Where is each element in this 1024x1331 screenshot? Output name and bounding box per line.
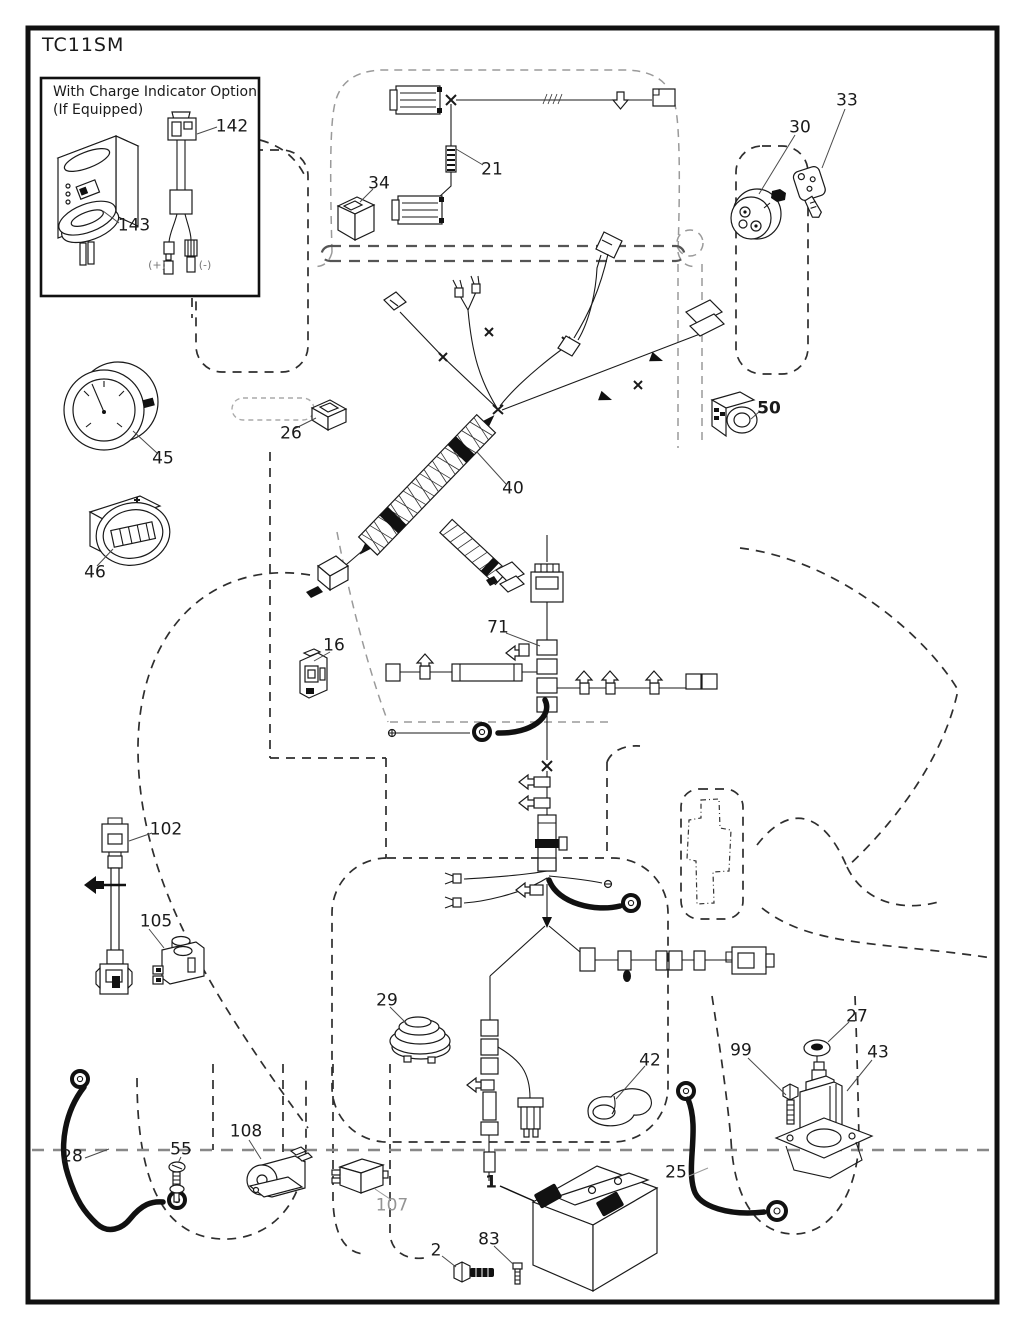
callout-55: 55 [170,1142,192,1159]
callout-25: 25 [665,1165,687,1182]
callout-142: 142 [216,119,248,136]
callout-105: 105 [140,914,172,931]
ammeter-gauge [64,362,158,453]
callout-27: 27 [846,1009,868,1026]
interlock-switch [300,649,330,698]
callout-45: 45 [152,451,174,468]
relay-solenoid-105 [149,929,204,984]
polarity-negative-label: (-) [199,260,212,271]
main-wiring-harness [306,232,724,598]
battery [500,1166,657,1291]
positive-battery-cable [678,1083,786,1220]
callout-30: 30 [789,120,811,137]
callout-2: 2 [431,1243,442,1260]
callout-102: 102 [150,822,182,839]
callout-16: 16 [323,638,345,655]
starter-relay-108 [247,1140,312,1197]
ignition-switch [731,135,795,239]
callout-143: 143 [118,218,150,235]
inset-title-line1: With Charge Indicator Option [53,84,257,100]
ignition-key [792,165,833,221]
callout-46: 46 [84,565,106,582]
terminal-boot [588,1066,651,1126]
callout-50: 50 [757,401,781,418]
callout-42: 42 [639,1053,661,1070]
callout-40: 40 [502,481,524,498]
callout-33: 33 [836,93,858,110]
callout-107: 107 [376,1198,408,1215]
hour-meter [90,496,176,572]
callout-34: 34 [368,176,390,193]
callout-71: 71 [487,620,509,637]
callout-83: 83 [478,1232,500,1249]
fuel-gauge [712,392,760,436]
headlight-connector-upper [390,86,442,114]
inline-fuse-assembly [84,818,152,994]
polarity-positive-label: (+) [148,260,166,271]
callout-108: 108 [230,1124,262,1141]
seat-switch [390,1007,450,1063]
callout-28: 28 [61,1149,83,1166]
callout-43: 43 [867,1045,889,1062]
diagram-artwork [0,0,1024,1331]
callout-21: 21 [481,162,503,179]
callout-26: 26 [280,426,302,443]
control-module-107 [332,1159,390,1199]
inset-title-line2: (If Equipped) [53,102,143,118]
starter-solenoid-group [748,1022,872,1178]
callout-1: 1 [485,1175,497,1192]
parts-diagram-page: TC11SM With Charge Indicator Option (If … [0,0,1024,1331]
callout-29: 29 [376,993,398,1010]
diagram-code: TC11SM [42,34,124,56]
headlight-connector-lower [392,196,444,224]
light-switch [338,189,374,240]
battery-bolt [442,1256,494,1282]
headlight-harness [390,86,675,224]
battery-screw [494,1246,522,1284]
callout-99: 99 [730,1043,752,1060]
branch-clips [576,671,662,694]
